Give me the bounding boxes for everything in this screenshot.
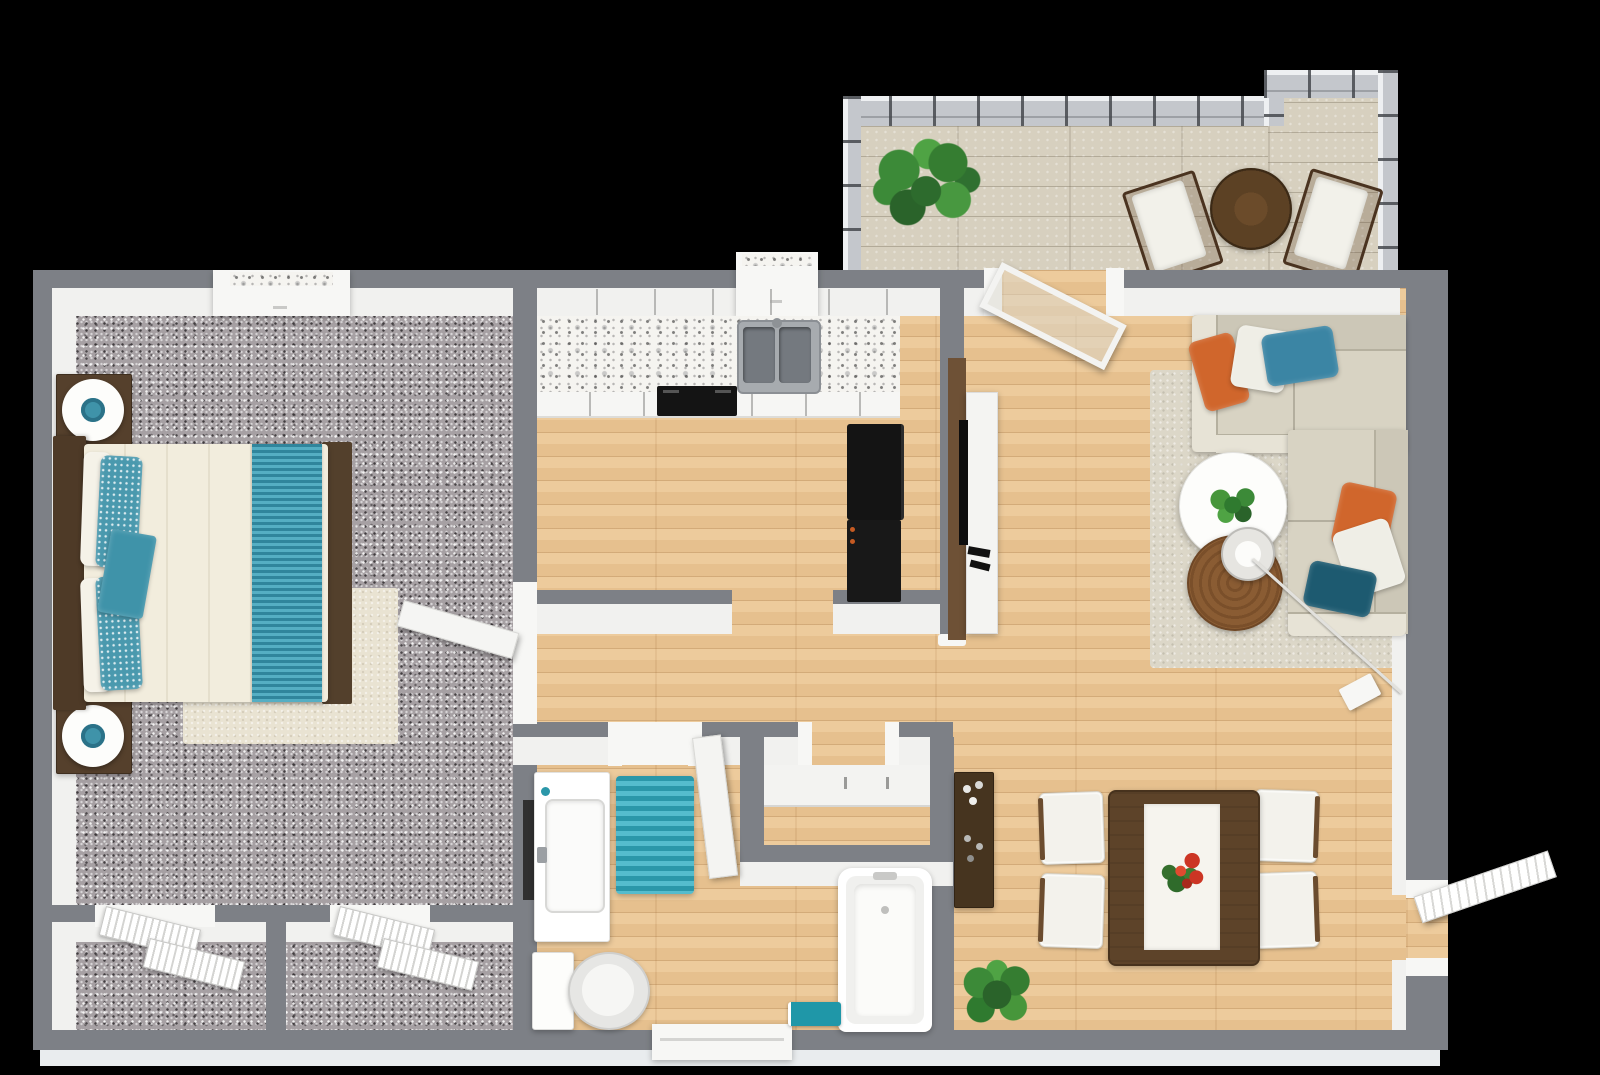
wall-hall-bottom-b bbox=[690, 722, 800, 737]
balcony-railing-right bbox=[1378, 70, 1398, 273]
wall-bedroom-bottom-b bbox=[215, 905, 330, 922]
bedroom-door-jamb-bottom bbox=[513, 708, 537, 724]
dining-chair-right-1 bbox=[1253, 789, 1319, 863]
wall-bedroom-divider-upper bbox=[513, 288, 537, 596]
bathroom-vanity bbox=[534, 772, 610, 942]
kitchen-countertop bbox=[537, 316, 900, 392]
toilet-seat bbox=[582, 964, 634, 1016]
wall-bedroom-bottom-a bbox=[33, 905, 95, 922]
wall-left bbox=[33, 270, 52, 1050]
wall-kitchen-bottom-a-face bbox=[513, 604, 732, 634]
kitchen-sink-basin-left bbox=[743, 327, 775, 383]
tv-console bbox=[966, 392, 998, 634]
kitchen-range bbox=[657, 386, 737, 416]
balcony-fern-plant bbox=[865, 123, 987, 247]
bath-mat bbox=[788, 1002, 841, 1026]
tv-screen bbox=[959, 420, 968, 545]
entry-door-jamb-bottom bbox=[1406, 958, 1448, 976]
dining-chair-left-1 bbox=[1039, 791, 1105, 865]
vanity-faucet-icon bbox=[537, 847, 547, 863]
oven-knob-2 bbox=[850, 539, 855, 544]
bedroom-door-jamb-top bbox=[513, 582, 537, 598]
bed-teal-runner bbox=[252, 444, 322, 702]
sofa-pillow-teal-top bbox=[1260, 325, 1339, 388]
wall-kitchen-bottom-b-face bbox=[833, 604, 953, 634]
wall-hall-bottom-a-face bbox=[513, 737, 620, 765]
oven-knob-1 bbox=[850, 527, 855, 532]
lamp-top bbox=[62, 379, 124, 441]
bathtub-faucet-icon bbox=[873, 872, 897, 880]
dining-chair-left-2 bbox=[1039, 873, 1106, 949]
linen-closet-jamb-left bbox=[798, 722, 812, 766]
linen-closet-jamb-right bbox=[885, 722, 899, 766]
toilet-bowl bbox=[568, 952, 650, 1030]
bathroom-window-mullion bbox=[660, 1038, 784, 1041]
wall-closet-divider bbox=[266, 922, 286, 1030]
bathroom-window bbox=[652, 1024, 792, 1060]
balcony-railing-left-end bbox=[843, 96, 861, 273]
bathtub-basin bbox=[854, 884, 916, 1016]
vanity-sink-basin bbox=[545, 799, 605, 913]
living-floor-plant bbox=[952, 950, 1042, 1036]
lamp-bottom bbox=[62, 705, 124, 767]
bedroom-window bbox=[213, 270, 350, 316]
vanity-soap-item bbox=[541, 787, 550, 796]
bistro-table bbox=[1210, 168, 1292, 250]
bar-cabinet bbox=[954, 772, 994, 908]
bed-headboard bbox=[53, 436, 86, 710]
wall-bedroom-bottom-c bbox=[430, 905, 513, 922]
dining-chair-left-1-back bbox=[1038, 798, 1045, 860]
bathtub bbox=[838, 868, 932, 1032]
range-vent-left bbox=[663, 390, 679, 393]
bar-bottle-2 bbox=[975, 781, 983, 789]
kitchen-upper-cabinet-line bbox=[540, 289, 900, 315]
wall-top-face-right bbox=[1124, 288, 1400, 316]
range-vent-right bbox=[715, 390, 731, 393]
bar-glass-1 bbox=[964, 835, 971, 842]
bathroom-door-threshold bbox=[620, 722, 690, 765]
coffee-table-plant bbox=[1206, 478, 1264, 532]
dining-chair-left-2-back bbox=[1038, 878, 1045, 942]
wall-top-right-segment bbox=[1106, 270, 1448, 288]
wall-hall-bottom-a bbox=[513, 722, 620, 737]
balcony-railing-top bbox=[845, 96, 1280, 126]
wall-hall-bottom-c bbox=[897, 722, 953, 737]
kitchen-oven-unit bbox=[847, 520, 901, 602]
bar-bottle-3 bbox=[969, 797, 977, 805]
lamp-bottom-center bbox=[81, 724, 105, 748]
floorplan-canvas bbox=[0, 0, 1600, 1075]
dining-chair-right-2 bbox=[1253, 871, 1320, 949]
bar-glass-2 bbox=[976, 843, 983, 850]
bar-glass-3 bbox=[967, 855, 974, 862]
dining-centerpiece-flowers bbox=[1162, 844, 1214, 896]
balcony-railing-extension-top bbox=[1264, 70, 1396, 98]
wall-kitchen-bottom-a bbox=[513, 590, 732, 604]
balcony-door-jamb-right bbox=[1106, 268, 1124, 316]
bed bbox=[53, 436, 353, 710]
bedroom-door-threshold bbox=[513, 596, 537, 710]
bar-bottle-1 bbox=[963, 785, 971, 793]
bathroom-door-jamb-left bbox=[608, 722, 622, 766]
linen-closet-shelf bbox=[764, 765, 930, 807]
closet-rod-hook-2 bbox=[886, 777, 889, 789]
closet-rod-hook-1 bbox=[844, 777, 847, 789]
bathtub-drain-icon bbox=[881, 906, 889, 914]
wall-linen-bottom bbox=[740, 845, 953, 862]
dining-table bbox=[1108, 790, 1260, 966]
wall-linen-left bbox=[740, 737, 764, 845]
lamp-top-center bbox=[81, 398, 105, 422]
wall-top-left-segment bbox=[33, 270, 1002, 288]
kitchen-sink bbox=[737, 320, 821, 394]
kitchen-refrigerator bbox=[847, 424, 904, 520]
bathroom-rug bbox=[616, 776, 694, 894]
bedroom-window-latch bbox=[273, 306, 287, 309]
kitchen-faucet-icon bbox=[772, 318, 782, 328]
wall-right-face-lower bbox=[1392, 960, 1406, 1030]
kitchen-sink-basin-right bbox=[779, 327, 811, 383]
wall-right-upper bbox=[1406, 270, 1448, 895]
sofa-bottom-armrest bbox=[1288, 612, 1406, 636]
bedroom-window-sill bbox=[230, 272, 333, 286]
kitchen-window-sill bbox=[742, 254, 812, 266]
